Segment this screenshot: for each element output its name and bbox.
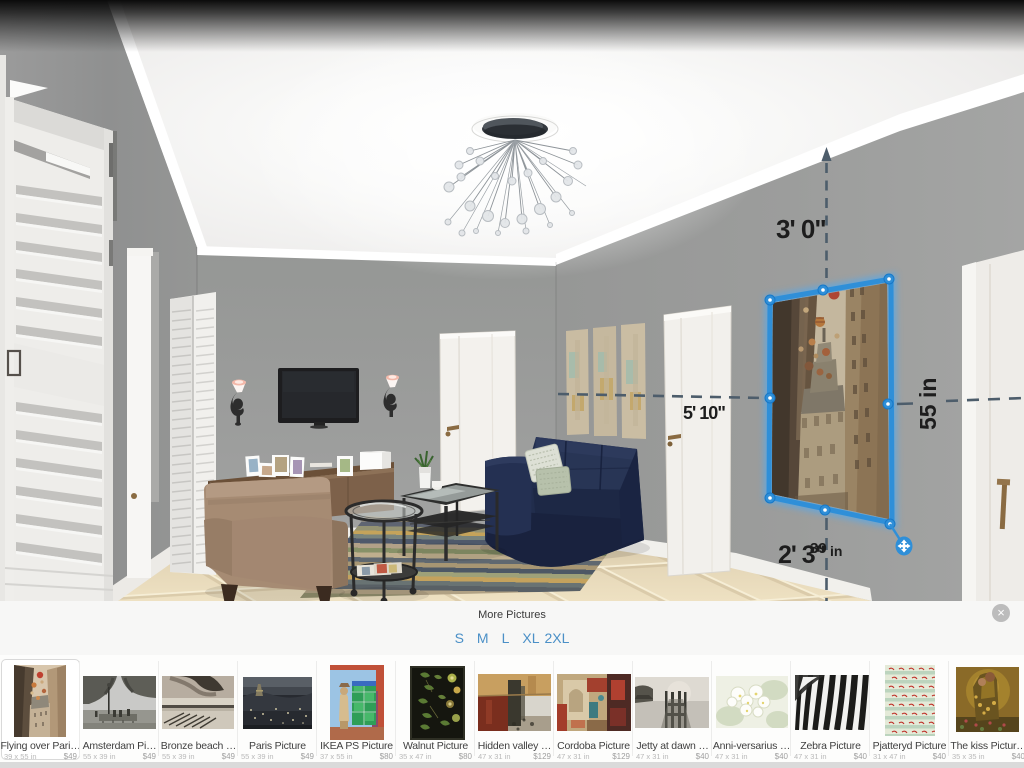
svg-text:55 in: 55 in — [915, 378, 941, 430]
svg-text:3' 0": 3' 0" — [776, 214, 826, 244]
svg-text:5' 10": 5' 10" — [683, 403, 725, 423]
svg-text:39: 39 — [810, 540, 827, 557]
svg-text:in: in — [830, 543, 842, 559]
